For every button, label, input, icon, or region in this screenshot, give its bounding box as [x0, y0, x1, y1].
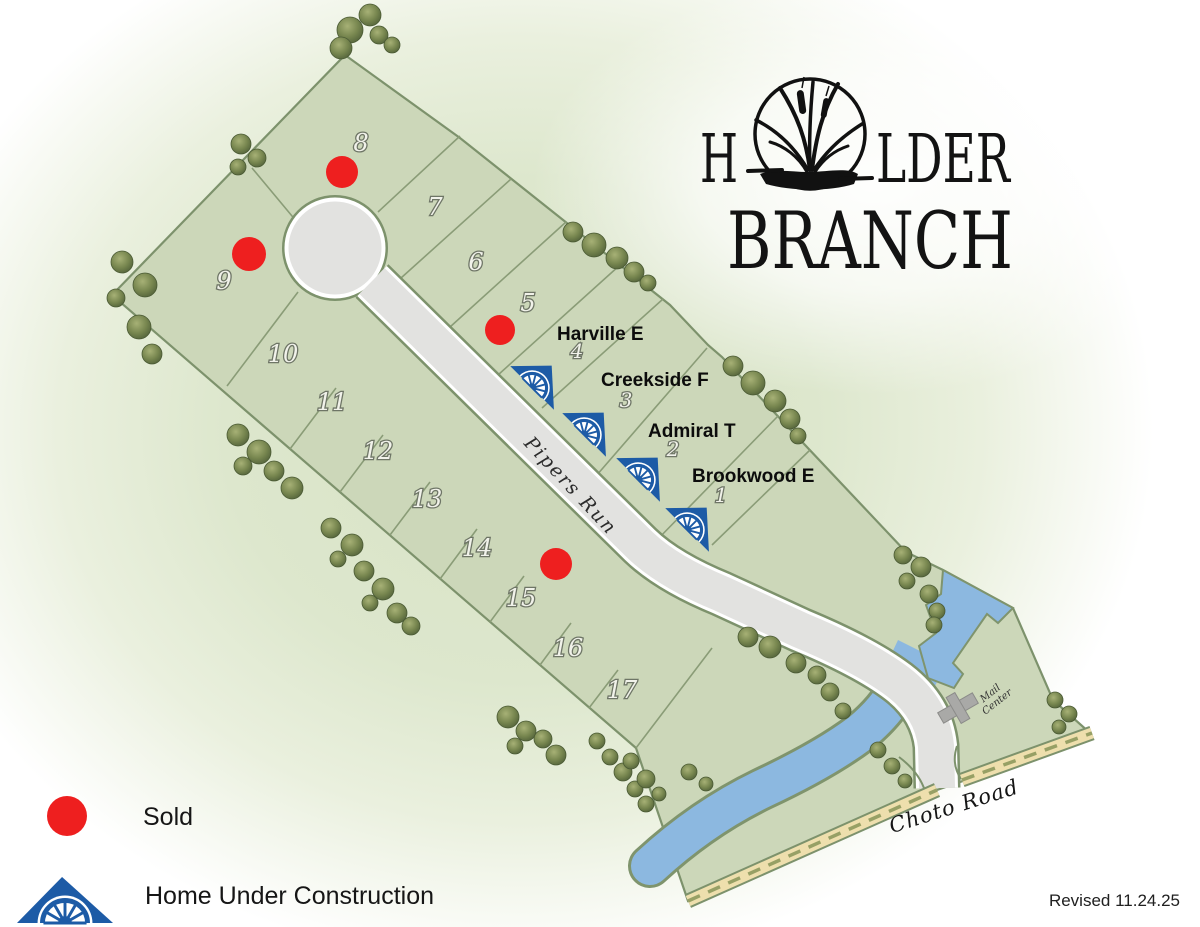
lot-number-15: 15 [506, 584, 537, 612]
lot-number-9: 9 [216, 267, 231, 295]
sold-marker-lot8 [326, 156, 358, 188]
lot-number-11: 11 [317, 388, 348, 416]
legend-construction-icon [17, 877, 113, 923]
lot-number-12: 12 [363, 437, 394, 465]
lot-number-5: 5 [520, 289, 535, 317]
logo-text-h: H [700, 120, 738, 198]
site-plan-page: 1 2 3 4 5 6 7 8 9 10 11 12 13 14 15 16 1… [0, 0, 1200, 927]
model-label-harville: Harville E [557, 324, 644, 345]
lot-number-14: 14 [462, 534, 493, 562]
legend-sold-label: Sold [143, 803, 193, 831]
tree-cluster-lot16 [497, 706, 566, 765]
lot-number-13: 13 [412, 485, 443, 513]
sold-marker-lot15 [540, 548, 572, 580]
lot-number-16: 16 [553, 634, 584, 662]
logo: H LDER BRANCH [700, 77, 1013, 287]
legend-sold-dot-icon [47, 796, 87, 836]
lot-number-17: 17 [607, 676, 638, 704]
lot-number-10: 10 [268, 340, 299, 368]
revised-date: Revised 11.24.25 [1049, 891, 1180, 910]
legend-construction-label: Home Under Construction [145, 882, 434, 910]
lot-number-6: 6 [468, 248, 483, 276]
lot-number-7: 7 [427, 193, 443, 221]
logo-cattail-emblem [748, 77, 872, 190]
sold-marker-lot9 [232, 237, 266, 271]
model-label-admiral: Admiral T [648, 421, 736, 442]
model-label-brookwood: Brookwood E [692, 466, 814, 487]
lot-number-3: 3 [620, 388, 633, 412]
logo-text-lder: LDER [876, 120, 1012, 198]
site-map: 1 2 3 4 5 6 7 8 9 10 11 12 13 14 15 16 1… [0, 0, 1200, 927]
model-label-creekside: Creekside F [601, 370, 709, 391]
cul-de-sac-pavement [289, 202, 382, 295]
logo-text-branch: BRANCH [727, 195, 1013, 287]
tree-cluster-top [330, 4, 400, 59]
lot-number-8: 8 [353, 129, 368, 157]
legend: Sold Home Under Construction [17, 796, 434, 923]
sold-marker-lot5 [485, 315, 515, 345]
